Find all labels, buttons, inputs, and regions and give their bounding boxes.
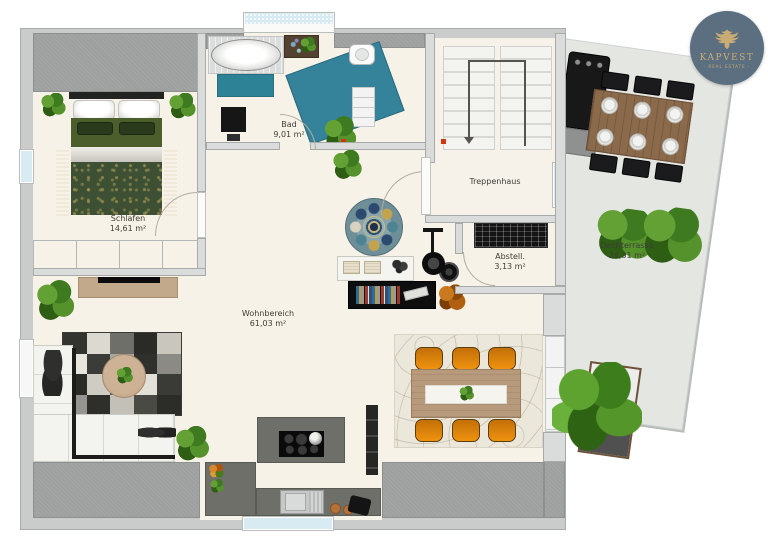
palm-plant	[552, 362, 642, 454]
storage-basket	[343, 261, 360, 274]
logo-tagline: - REAL ESTATE -	[704, 64, 751, 69]
roof-panel	[33, 33, 206, 92]
logo-name: KAPVEST	[700, 53, 755, 63]
wall	[197, 33, 206, 192]
terrace-chair	[600, 71, 629, 92]
room-label-wohnbereich: Wohnbereich 61,03 m²	[230, 309, 306, 330]
wall	[206, 142, 280, 150]
terrace-chair	[654, 162, 683, 183]
smoke-detector-marker	[441, 139, 446, 144]
storage-shelving-unit	[474, 223, 548, 248]
terrace-chair	[622, 158, 651, 179]
wall	[455, 223, 463, 254]
plate	[600, 96, 619, 115]
bed-headboard	[69, 92, 164, 99]
bed-sheet-fold	[71, 147, 162, 162]
stairs-direction-arrow	[468, 60, 470, 138]
sofa-trim	[72, 348, 76, 458]
room-label-treppenhaus: Treppenhaus	[443, 177, 547, 187]
shelf-plant	[300, 37, 316, 53]
bath-mat	[217, 74, 274, 97]
nightstand-plant	[40, 93, 66, 117]
sink-drainboard	[309, 492, 322, 512]
window	[20, 340, 33, 397]
wall	[33, 268, 206, 276]
plate	[595, 128, 614, 147]
terrace-chair	[633, 75, 662, 96]
kitchen-column	[366, 405, 378, 475]
storage-basket	[364, 261, 381, 274]
sofa-cushions	[138, 424, 176, 441]
plate	[628, 132, 647, 151]
pillow	[73, 100, 115, 120]
dining-chair	[488, 419, 516, 442]
dormer-window	[245, 13, 333, 24]
sofa-cushions	[36, 350, 70, 396]
vanity-stool	[227, 134, 240, 141]
stairs-direction-arrow	[468, 60, 526, 62]
plate	[665, 105, 684, 124]
door-leaf	[197, 192, 206, 238]
kapvest-logo: KAPVEST - REAL ESTATE -	[690, 11, 764, 85]
cutting-board	[330, 503, 341, 514]
dining-chair	[415, 419, 443, 442]
arc-lamp-shade	[422, 252, 445, 275]
arrow-head-icon	[464, 137, 474, 144]
bathtub	[211, 39, 281, 71]
dining-chair	[415, 347, 443, 370]
plate	[661, 137, 680, 156]
counter-plant	[210, 479, 224, 493]
bed-duvet	[71, 162, 162, 215]
toilet-seat	[355, 48, 369, 61]
wall	[555, 33, 566, 286]
bed-rug-fringe	[56, 148, 69, 216]
wardrobe	[33, 240, 206, 269]
plate	[633, 101, 652, 120]
stairs-direction-arrow	[524, 60, 526, 146]
table-plant	[459, 386, 474, 401]
eagle-icon	[709, 28, 745, 52]
wall	[310, 142, 429, 150]
book-row	[356, 286, 400, 304]
roof-panel	[382, 462, 544, 518]
terrace-dining-table	[586, 89, 694, 164]
pillow	[118, 100, 160, 120]
sink-basin	[285, 493, 306, 511]
sofa-side-plant	[175, 426, 209, 462]
room-label-dachterrasse: Dachterrasse 24,31 m²	[562, 241, 692, 262]
roof-panel	[544, 460, 565, 518]
living-plant	[36, 280, 74, 322]
wall	[425, 33, 435, 163]
bed-cushion	[119, 122, 155, 135]
wall	[455, 286, 566, 294]
window	[243, 517, 333, 530]
dining-chair	[452, 419, 480, 442]
dining-chair	[488, 347, 516, 370]
coffee-table-plant	[116, 367, 133, 384]
wall	[543, 294, 566, 336]
terrace-chair	[589, 153, 618, 174]
window	[20, 150, 33, 183]
sideboard-decor	[392, 260, 408, 274]
wall	[425, 215, 566, 223]
door-leaf	[421, 157, 431, 215]
vanity-table	[221, 107, 246, 132]
bed-cushion	[77, 122, 113, 135]
floor-plan-canvas: Dachterrasse 24,31 m² Schlafen 14,61 m²	[0, 0, 768, 545]
cooking-pot	[309, 432, 322, 445]
dining-chair	[452, 347, 480, 370]
television	[98, 277, 160, 283]
roof-panel	[33, 462, 200, 518]
nightstand-plant	[168, 93, 196, 119]
counter-flower-pot	[208, 463, 225, 479]
sofa-trim	[72, 455, 175, 459]
hall-plant	[332, 150, 362, 180]
terrace-chair	[666, 80, 695, 101]
